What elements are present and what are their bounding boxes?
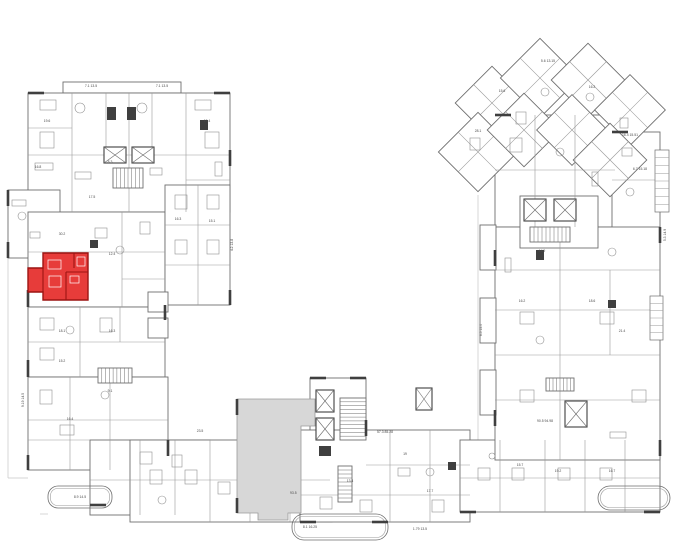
area-label: 9.19 14.5 [21,393,25,407]
area-label: 16.4 [67,417,74,421]
area-label: 8.1 16.25 [303,525,317,529]
gray-area-label: 93.5 [290,491,297,495]
area-label: 16.8 [35,165,42,169]
area-label: 16.3 [109,329,116,333]
area-label: 9.1 [108,389,113,393]
area-label: 28.1 [475,129,482,133]
area-label: 4.2 13.8 [230,239,234,251]
area-label: 13.4 [347,479,354,483]
area-label: 16.4 15.51 [622,133,638,137]
area-label: 23.5 [197,429,204,433]
area-label: 15.7 [517,463,524,467]
area-label: 17.7 [427,489,434,493]
area-label: 16.3 [175,217,182,221]
area-label: 14.9 [539,249,546,253]
unit-block [148,318,168,338]
area-label: 17.5 [89,195,96,199]
floor-plan-page: 93.5 7.1 13.57.1 13.519.619.416.88.317.5… [0,0,680,551]
unit-block [300,430,470,522]
service-shaft [608,300,616,308]
area-label: 19.6 [44,119,51,123]
staircase [338,466,352,502]
area-label: 12.4 [109,252,116,256]
area-label: 19.4 [204,119,211,123]
service-shaft [90,240,98,248]
area-label: 15.2 [59,359,66,363]
area-label: 16.2 [589,85,596,89]
area-label: 21.4 [619,329,626,333]
service-shaft [107,107,116,120]
area-label: 18.6 [589,299,596,303]
unit-block [480,370,496,415]
area-label: 1.79 13.5 [413,527,427,531]
area-label: 15.1 [209,219,216,223]
area-label: 30.2 [59,232,66,236]
area-label: 19.2 [555,469,562,473]
area-label: 7.1 13.5 [85,84,97,88]
area-label: 16.7 [609,469,616,473]
area-label: 18.1 [59,329,66,333]
area-label: 6.5 15.0 [479,324,483,336]
area-label: 5.3 14.9 [663,229,667,241]
area-label: 57.3 85.28 [377,430,393,434]
unit-block [480,225,496,270]
area-label: 8.9 14.5 [74,495,86,499]
area-label: 16.2 [519,299,526,303]
area-label: 8.3 [108,160,113,164]
area-label: 7.1 13.5 [156,84,168,88]
area-label: 90.5 94.98 [537,419,553,423]
area-label: 6.7 15.18 [633,167,647,171]
staircase [340,398,366,440]
area-label: 19 [403,452,407,456]
area-label: 15.6 [499,89,506,93]
staircase [98,368,132,383]
service-shaft [319,446,331,456]
area-label: 5.6 13.15 [541,59,555,63]
service-shaft [127,107,136,120]
service-shaft [448,462,456,470]
floor-plan-svg: 93.5 7.1 13.57.1 13.519.619.416.88.317.5… [0,0,680,551]
